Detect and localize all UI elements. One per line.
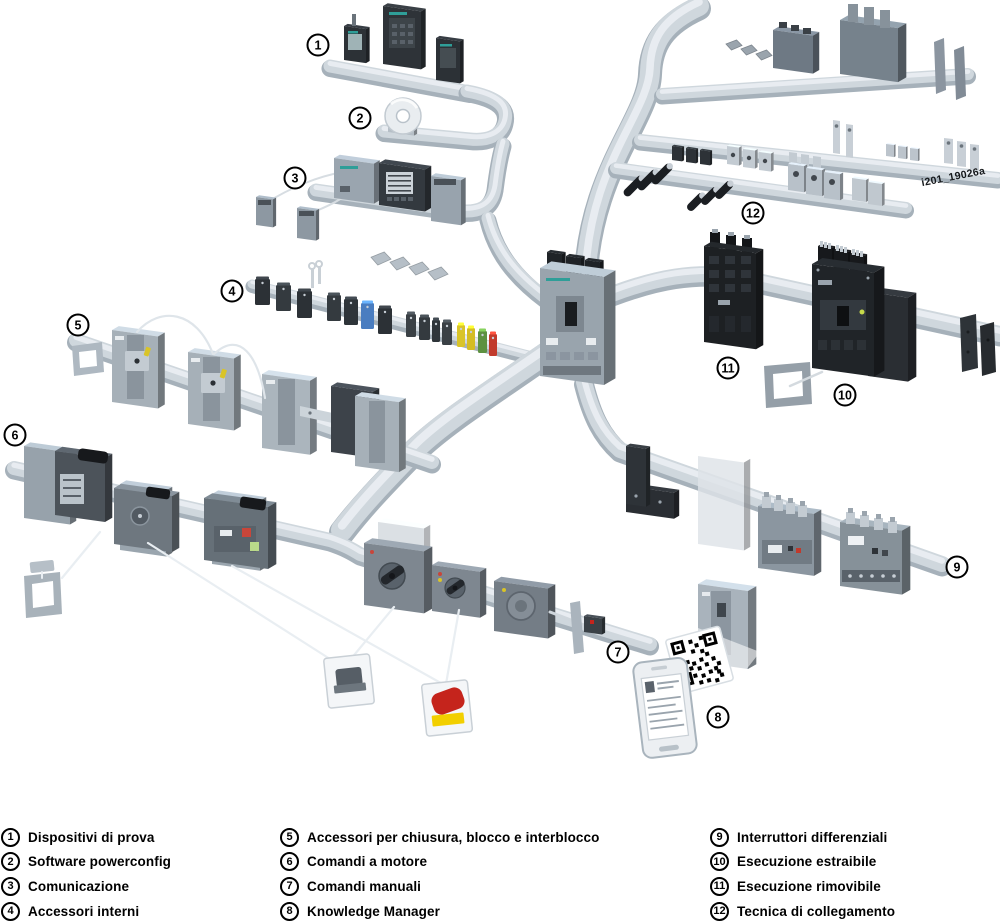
legend-item-2: 2Software powerconfig xyxy=(1,850,171,875)
legend-item-4: 4Accessori interni xyxy=(1,899,171,924)
callout-5: 5 xyxy=(67,314,90,337)
legend-label-3: Comunicazione xyxy=(28,879,129,894)
legend-badge-3: 3 xyxy=(1,877,20,896)
legend-label-12: Tecnica di collegamento xyxy=(737,904,895,919)
legend-badge-6: 6 xyxy=(280,852,299,871)
product-10-withdrawable-breaker xyxy=(764,241,996,408)
callout-7: 7 xyxy=(607,641,630,664)
legend-badge-4: 4 xyxy=(1,902,20,921)
legend-item-11: 11Esecuzione rimovibile xyxy=(710,874,895,899)
legend-label-2: Software powerconfig xyxy=(28,854,171,869)
legend-column-2: 5Accessori per chiusura, blocco e interb… xyxy=(280,825,600,923)
legend-column-1: 1Dispositivi di prova 2Software powercon… xyxy=(1,825,171,923)
callout-8: 8 xyxy=(707,706,730,729)
callout-11: 11 xyxy=(717,357,740,380)
legend-item-9: 9Interruttori differenziali xyxy=(710,825,895,850)
product-8-knowledge-manager xyxy=(632,579,760,759)
legend-label-5: Accessori per chiusura, blocco e interbl… xyxy=(307,830,600,845)
legend-label-4: Accessori interni xyxy=(28,904,139,919)
legend-badge-10: 10 xyxy=(710,852,729,871)
central-breaker xyxy=(540,250,615,385)
callout-1: 1 xyxy=(307,34,330,57)
legend-item-12: 12Tecnica di collegamento xyxy=(710,899,895,924)
legend-label-1: Dispositivi di prova xyxy=(28,830,155,845)
legend-badge-12: 12 xyxy=(710,902,729,921)
legend-label-9: Interruttori differenziali xyxy=(737,830,887,845)
product-4-internal-accessories xyxy=(255,261,497,356)
legend-label-7: Comandi manuali xyxy=(307,879,421,894)
legend-item-8: 8Knowledge Manager xyxy=(280,899,600,924)
legend-item-5: 5Accessori per chiusura, blocco e interb… xyxy=(280,825,600,850)
legend-label-11: Esecuzione rimovibile xyxy=(737,879,881,894)
callout-10: 10 xyxy=(834,384,857,407)
legend-badge-5: 5 xyxy=(280,828,299,847)
legend-badge-1: 1 xyxy=(1,828,20,847)
legend-badge-8: 8 xyxy=(280,902,299,921)
legend-item-1: 1Dispositivi di prova xyxy=(1,825,171,850)
figure-canvas: 1 2 3 4 5 6 7 8 9 10 11 12 i201_19026a 1… xyxy=(0,0,1000,924)
product-11-removable-breaker xyxy=(704,229,763,349)
callout-9: 9 xyxy=(946,556,969,579)
legend-item-6: 6Comandi a motore xyxy=(280,850,600,875)
legend-badge-7: 7 xyxy=(280,877,299,896)
legend-item-10: 10Esecuzione estraibile xyxy=(710,850,895,875)
legend-badge-11: 11 xyxy=(710,877,729,896)
legend-item-7: 7Comandi manuali xyxy=(280,874,600,899)
callout-4: 4 xyxy=(221,280,244,303)
legend-label-6: Comandi a motore xyxy=(307,854,427,869)
product-2-powerconfig-cd xyxy=(385,98,421,136)
legend-badge-2: 2 xyxy=(1,852,20,871)
legend-badge-9: 9 xyxy=(710,828,729,847)
legend-label-8: Knowledge Manager xyxy=(307,904,440,919)
legend-item-3: 3Comunicazione xyxy=(1,874,171,899)
legend-label-10: Esecuzione estraibile xyxy=(737,854,876,869)
callout-3: 3 xyxy=(284,167,307,190)
legend-column-3: 9Interruttori differenziali 10Esecuzione… xyxy=(710,825,895,923)
callout-2: 2 xyxy=(349,107,372,130)
callout-6: 6 xyxy=(4,424,27,447)
product-5-locking-interlock-breakers xyxy=(72,316,406,472)
callout-12: 12 xyxy=(742,202,765,225)
